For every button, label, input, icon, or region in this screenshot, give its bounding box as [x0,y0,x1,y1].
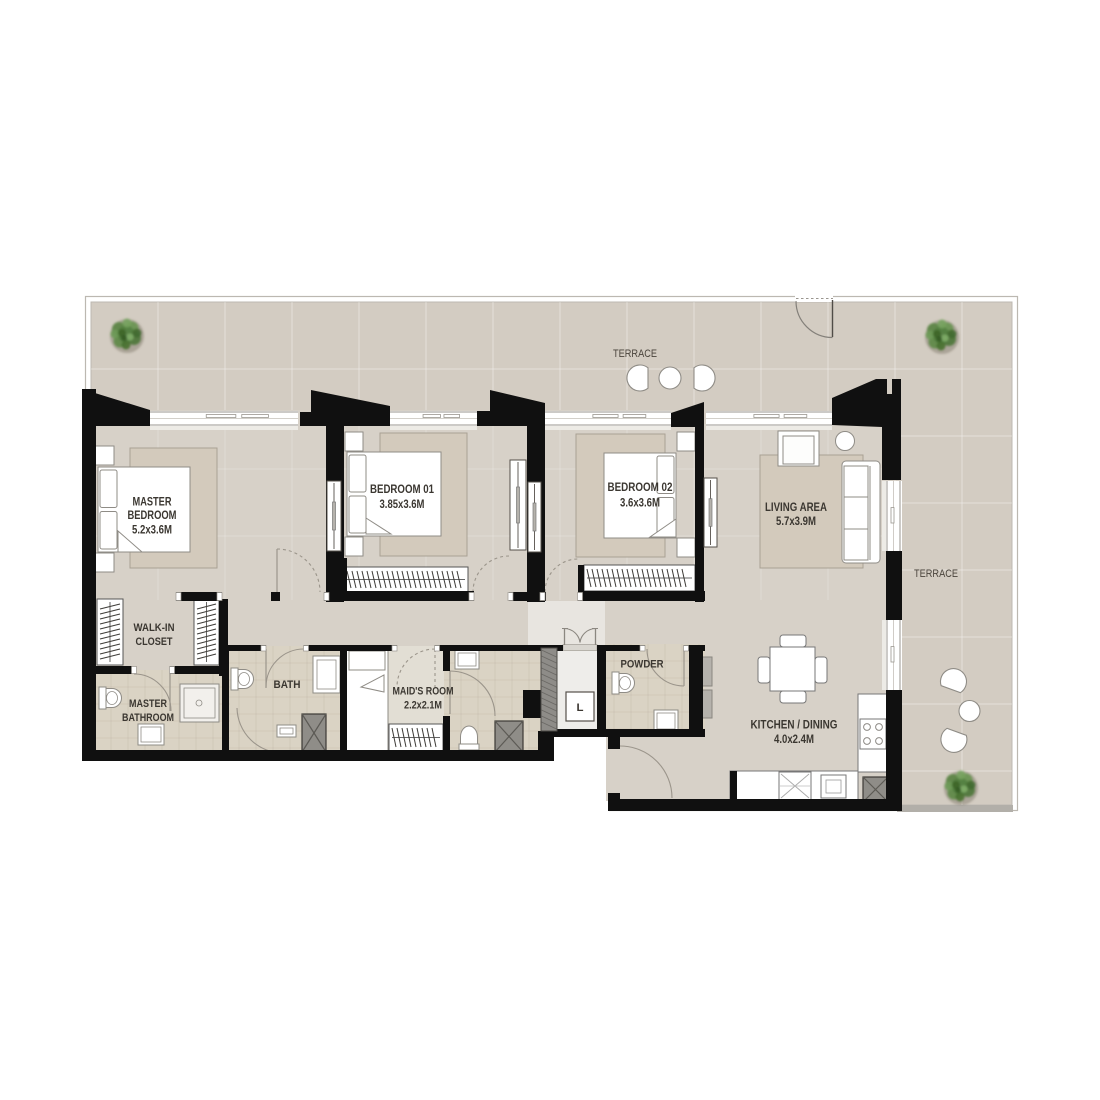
svg-text:POWDER: POWDER [621,659,664,671]
svg-text:TERRACE: TERRACE [613,348,657,360]
svg-text:2.2x2.1M: 2.2x2.1M [404,700,442,712]
svg-text:3.85x3.6M: 3.85x3.6M [380,499,425,511]
svg-text:5.7x3.9M: 5.7x3.9M [776,516,816,528]
svg-text:BATH: BATH [274,679,301,691]
svg-text:LIVING AREA: LIVING AREA [765,502,827,514]
svg-text:BEDROOM 02: BEDROOM 02 [608,482,673,494]
svg-text:4.0x2.4M: 4.0x2.4M [774,734,814,746]
svg-text:L: L [577,702,584,714]
svg-text:BEDROOM 01: BEDROOM 01 [370,484,435,496]
svg-text:KITCHEN / DINING: KITCHEN / DINING [751,720,838,732]
svg-text:MAID'S ROOM: MAID'S ROOM [393,686,454,698]
svg-text:TERRACE: TERRACE [914,568,958,580]
svg-text:MASTER: MASTER [129,698,167,710]
svg-text:MASTER: MASTER [133,497,173,509]
svg-text:BATHROOM: BATHROOM [122,712,174,724]
svg-text:5.2x3.6M: 5.2x3.6M [132,525,172,537]
svg-text:3.6x3.6M: 3.6x3.6M [620,498,660,510]
svg-text:WALK-IN: WALK-IN [134,622,175,634]
svg-text:CLOSET: CLOSET [136,636,173,648]
svg-text:BEDROOM: BEDROOM [128,510,177,522]
